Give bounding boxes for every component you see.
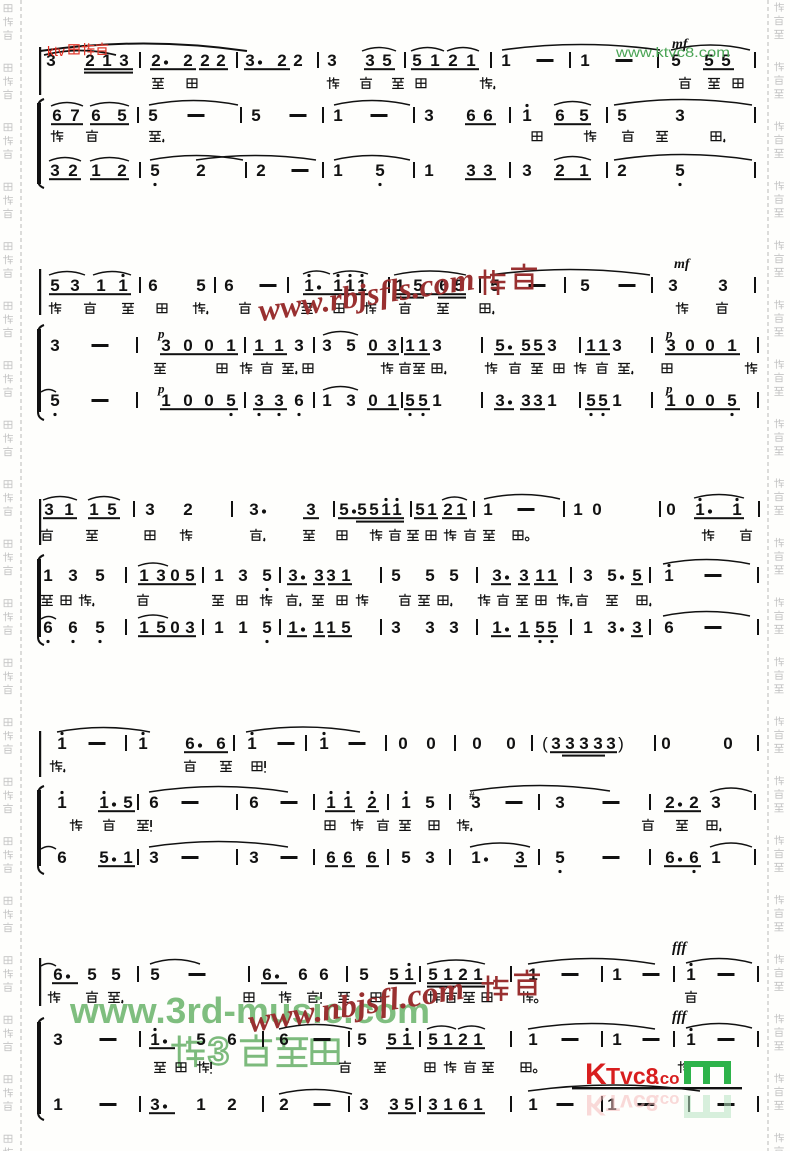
- svg-text:2: 2: [183, 500, 192, 519]
- svg-text:3: 3: [156, 566, 165, 585]
- svg-text:0: 0: [472, 734, 481, 753]
- svg-text:1: 1: [519, 618, 528, 637]
- svg-text:www.ktvc8.com: www.ktvc8.com: [615, 44, 730, 60]
- svg-text:1: 1: [686, 1030, 695, 1049]
- svg-text:K: K: [585, 1058, 607, 1091]
- svg-text:1: 1: [214, 618, 223, 637]
- svg-text:3: 3: [389, 1095, 398, 1114]
- svg-text:1: 1: [274, 336, 283, 355]
- svg-text:1: 1: [471, 848, 480, 867]
- svg-text:1: 1: [443, 1095, 452, 1114]
- svg-text:1: 1: [43, 566, 52, 585]
- svg-text:3: 3: [428, 1095, 437, 1114]
- svg-text:1: 1: [326, 793, 335, 812]
- svg-text:2: 2: [196, 161, 205, 180]
- svg-text:2: 2: [183, 51, 192, 70]
- svg-text:0: 0: [685, 336, 694, 355]
- svg-text:2: 2: [200, 51, 209, 70]
- svg-text:6: 6: [57, 848, 66, 867]
- svg-text:1: 1: [612, 965, 621, 984]
- svg-text:3: 3: [533, 391, 542, 410]
- svg-text:fff: fff: [672, 1009, 688, 1025]
- svg-text:1: 1: [123, 848, 132, 867]
- svg-text:5: 5: [555, 848, 564, 867]
- svg-text:5: 5: [607, 566, 616, 585]
- svg-text:3: 3: [359, 1095, 368, 1114]
- svg-text:6: 6: [52, 106, 61, 125]
- svg-text:.co: .co: [655, 1091, 680, 1110]
- svg-text:3: 3: [607, 618, 616, 637]
- svg-text:5: 5: [156, 618, 165, 637]
- svg-text:5: 5: [675, 161, 684, 180]
- svg-text:1: 1: [612, 1030, 621, 1049]
- svg-text:5: 5: [632, 566, 641, 585]
- svg-text:2: 2: [216, 51, 225, 70]
- svg-text:1: 1: [473, 1095, 482, 1114]
- svg-text:1: 1: [89, 500, 98, 519]
- svg-text:1: 1: [501, 51, 510, 70]
- svg-text:1: 1: [91, 161, 100, 180]
- svg-text:3: 3: [425, 848, 434, 867]
- svg-text:3: 3: [449, 618, 458, 637]
- svg-text:1: 1: [139, 566, 148, 585]
- svg-text:5: 5: [117, 106, 126, 125]
- svg-text:3: 3: [424, 106, 433, 125]
- svg-text:3: 3: [44, 500, 53, 519]
- svg-text:2: 2: [256, 161, 265, 180]
- svg-text:3: 3: [294, 336, 303, 355]
- svg-text:(: (: [542, 734, 548, 753]
- svg-text:6: 6: [249, 793, 258, 812]
- svg-text:5: 5: [418, 391, 427, 410]
- svg-text:2: 2: [665, 793, 674, 812]
- svg-text:5: 5: [535, 618, 544, 637]
- svg-text:3: 3: [425, 618, 434, 637]
- svg-text:1: 1: [322, 391, 331, 410]
- svg-text:3: 3: [68, 566, 77, 585]
- svg-text:6: 6: [149, 793, 158, 812]
- svg-text:5: 5: [359, 965, 368, 984]
- svg-text:1: 1: [288, 618, 297, 637]
- svg-text:0: 0: [204, 391, 213, 410]
- svg-text:5: 5: [404, 1095, 413, 1114]
- svg-text:5: 5: [449, 566, 458, 585]
- svg-text:6: 6: [483, 106, 492, 125]
- svg-text:3: 3: [466, 161, 475, 180]
- svg-text:5: 5: [391, 566, 400, 585]
- svg-text:6: 6: [458, 1095, 467, 1114]
- svg-text:#: #: [469, 791, 475, 802]
- svg-text:1: 1: [456, 500, 465, 519]
- svg-text:5: 5: [150, 161, 159, 180]
- svg-text:1: 1: [196, 1095, 205, 1114]
- svg-text:5: 5: [111, 965, 120, 984]
- svg-text:2: 2: [151, 51, 160, 70]
- svg-text:6: 6: [91, 106, 100, 125]
- svg-text:3: 3: [675, 106, 684, 125]
- svg-text:3: 3: [150, 1095, 159, 1114]
- svg-text:3: 3: [606, 734, 615, 753]
- svg-text:5: 5: [50, 391, 59, 410]
- svg-text:1: 1: [333, 161, 342, 180]
- svg-text:3: 3: [391, 618, 400, 637]
- svg-text:1: 1: [99, 793, 108, 812]
- svg-text:5: 5: [346, 336, 355, 355]
- svg-text:1: 1: [402, 1030, 411, 1049]
- svg-text:3: 3: [274, 391, 283, 410]
- svg-text:1: 1: [483, 500, 492, 519]
- svg-text:5: 5: [251, 106, 260, 125]
- svg-text:1: 1: [392, 500, 401, 519]
- svg-text:5: 5: [405, 391, 414, 410]
- svg-text:3: 3: [249, 500, 258, 519]
- svg-text:5: 5: [412, 51, 421, 70]
- svg-text:5: 5: [262, 566, 271, 585]
- svg-text:3: 3: [495, 391, 504, 410]
- svg-text:Tvc8: Tvc8: [606, 1090, 659, 1116]
- svg-text:0: 0: [723, 734, 732, 753]
- svg-text:1: 1: [64, 500, 73, 519]
- svg-text:6: 6: [555, 106, 564, 125]
- svg-text:5: 5: [580, 276, 589, 295]
- svg-text:0: 0: [398, 734, 407, 753]
- svg-text:5: 5: [369, 500, 378, 519]
- svg-text:1: 1: [341, 566, 350, 585]
- svg-text:0: 0: [368, 391, 377, 410]
- svg-text:6: 6: [367, 848, 376, 867]
- svg-text:6: 6: [68, 618, 77, 637]
- svg-text:3: 3: [521, 391, 530, 410]
- svg-text:5: 5: [150, 965, 159, 984]
- svg-text:6: 6: [689, 848, 698, 867]
- svg-text:5: 5: [428, 1030, 437, 1049]
- svg-text:6: 6: [43, 618, 52, 637]
- svg-text:1: 1: [387, 391, 396, 410]
- svg-text:1: 1: [727, 336, 736, 355]
- svg-text:6: 6: [224, 276, 233, 295]
- svg-text:5: 5: [617, 106, 626, 125]
- svg-text:2: 2: [689, 793, 698, 812]
- svg-text:1: 1: [139, 618, 148, 637]
- svg-text:2: 2: [117, 161, 126, 180]
- svg-text:1: 1: [664, 566, 673, 585]
- svg-text:1: 1: [586, 336, 595, 355]
- svg-text:1: 1: [118, 276, 127, 295]
- svg-text:3: 3: [555, 793, 564, 812]
- svg-text:2: 2: [293, 51, 302, 70]
- svg-text:5: 5: [521, 336, 530, 355]
- svg-text:1: 1: [583, 618, 592, 637]
- svg-text:2: 2: [277, 51, 286, 70]
- svg-text:1: 1: [473, 965, 482, 984]
- svg-text:6: 6: [294, 391, 303, 410]
- svg-text:5: 5: [586, 391, 595, 410]
- svg-text:3: 3: [612, 336, 621, 355]
- svg-text:ktv: ktv: [47, 43, 65, 59]
- svg-text:1: 1: [96, 276, 105, 295]
- svg-text:1: 1: [473, 1030, 482, 1049]
- svg-text:5: 5: [262, 618, 271, 637]
- svg-text:5: 5: [196, 276, 205, 295]
- svg-text:3: 3: [579, 734, 588, 753]
- svg-text:1: 1: [247, 734, 256, 753]
- svg-text:6: 6: [319, 965, 328, 984]
- svg-text:3: 3: [238, 566, 247, 585]
- svg-text:1: 1: [573, 500, 582, 519]
- svg-text:5: 5: [579, 106, 588, 125]
- svg-text:1: 1: [686, 965, 695, 984]
- svg-text:3: 3: [322, 336, 331, 355]
- svg-text:3: 3: [245, 51, 254, 70]
- svg-text:3: 3: [149, 848, 158, 867]
- svg-text:1: 1: [214, 566, 223, 585]
- svg-text:1: 1: [343, 793, 352, 812]
- svg-text:): ): [618, 734, 624, 753]
- svg-text:5: 5: [185, 566, 194, 585]
- svg-text:3: 3: [668, 276, 677, 295]
- svg-text:fff: fff: [672, 940, 688, 956]
- svg-text:1: 1: [612, 391, 621, 410]
- svg-text:1: 1: [711, 848, 720, 867]
- svg-text:0: 0: [705, 336, 714, 355]
- svg-text:5: 5: [341, 618, 350, 637]
- svg-text:1: 1: [381, 500, 390, 519]
- svg-text:3: 3: [185, 618, 194, 637]
- svg-text:3: 3: [119, 51, 128, 70]
- svg-text:1: 1: [443, 1030, 452, 1049]
- svg-text:3: 3: [327, 51, 336, 70]
- svg-text:3: 3: [515, 848, 524, 867]
- svg-text:2: 2: [85, 51, 94, 70]
- svg-text:1: 1: [401, 793, 410, 812]
- svg-text:3: 3: [432, 336, 441, 355]
- svg-text:5: 5: [226, 391, 235, 410]
- svg-text:6: 6: [53, 965, 62, 984]
- svg-text:0: 0: [183, 391, 192, 410]
- svg-text:5: 5: [382, 51, 391, 70]
- svg-text:1: 1: [466, 51, 475, 70]
- svg-text:5: 5: [727, 391, 736, 410]
- svg-text:1: 1: [580, 51, 589, 70]
- svg-text:5: 5: [87, 965, 96, 984]
- svg-text:5: 5: [357, 500, 366, 519]
- svg-text:6: 6: [343, 848, 352, 867]
- svg-text:0: 0: [170, 618, 179, 637]
- svg-text:0: 0: [661, 734, 670, 753]
- svg-text:0: 0: [368, 336, 377, 355]
- svg-text:1: 1: [432, 391, 441, 410]
- svg-text:1: 1: [528, 1095, 537, 1114]
- svg-text:3: 3: [718, 276, 727, 295]
- svg-text:2: 2: [367, 793, 376, 812]
- svg-text:1: 1: [427, 500, 436, 519]
- svg-text:2: 2: [617, 161, 626, 180]
- svg-text:1: 1: [161, 391, 170, 410]
- svg-text:5: 5: [425, 566, 434, 585]
- svg-text:1: 1: [424, 161, 433, 180]
- svg-text:0: 0: [506, 734, 515, 753]
- svg-text:6: 6: [664, 618, 673, 637]
- svg-text:1: 1: [522, 106, 531, 125]
- svg-text:1: 1: [138, 734, 147, 753]
- svg-text:1: 1: [528, 1030, 537, 1049]
- svg-text:2: 2: [448, 51, 457, 70]
- svg-text:5: 5: [123, 793, 132, 812]
- svg-text:5: 5: [547, 618, 556, 637]
- svg-text:3: 3: [161, 336, 170, 355]
- svg-text:5: 5: [95, 566, 104, 585]
- svg-text:5: 5: [415, 500, 424, 519]
- svg-text:3: 3: [551, 734, 560, 753]
- svg-text:3: 3: [522, 161, 531, 180]
- svg-text:2: 2: [227, 1095, 236, 1114]
- svg-text:2: 2: [68, 161, 77, 180]
- svg-text:1: 1: [547, 391, 556, 410]
- svg-text:5: 5: [357, 1030, 366, 1049]
- svg-text:6: 6: [262, 965, 271, 984]
- svg-text:3: 3: [483, 161, 492, 180]
- svg-text:3: 3: [70, 276, 79, 295]
- svg-text:3: 3: [547, 336, 556, 355]
- svg-text:3: 3: [711, 793, 720, 812]
- svg-text:3: 3: [53, 1030, 62, 1049]
- svg-text:K: K: [585, 1088, 607, 1121]
- svg-text:5: 5: [425, 793, 434, 812]
- svg-text:1: 1: [492, 618, 501, 637]
- svg-text:6: 6: [279, 1030, 288, 1049]
- svg-text:1: 1: [418, 336, 427, 355]
- svg-text:6: 6: [326, 848, 335, 867]
- svg-text:6: 6: [466, 106, 475, 125]
- svg-text:5: 5: [99, 848, 108, 867]
- svg-text:5: 5: [339, 500, 348, 519]
- svg-text:1: 1: [547, 566, 556, 585]
- svg-text:6: 6: [148, 276, 157, 295]
- svg-text:3: 3: [288, 566, 297, 585]
- svg-text:3: 3: [254, 391, 263, 410]
- svg-text:1: 1: [326, 618, 335, 637]
- svg-text:1: 1: [238, 618, 247, 637]
- svg-text:1: 1: [57, 793, 66, 812]
- svg-text:1: 1: [150, 1030, 159, 1049]
- svg-text:3: 3: [249, 848, 258, 867]
- svg-text:2: 2: [458, 1030, 467, 1049]
- svg-text:3: 3: [314, 566, 323, 585]
- svg-text:1: 1: [732, 500, 741, 519]
- svg-text:3: 3: [387, 336, 396, 355]
- svg-text:1: 1: [666, 391, 675, 410]
- svg-text:6: 6: [665, 848, 674, 867]
- svg-text:0: 0: [592, 500, 601, 519]
- svg-text:1: 1: [579, 161, 588, 180]
- svg-text:1: 1: [53, 1095, 62, 1114]
- svg-text:1: 1: [57, 734, 66, 753]
- svg-text:5: 5: [375, 161, 384, 180]
- svg-text:0: 0: [426, 734, 435, 753]
- svg-text:1: 1: [430, 51, 439, 70]
- svg-text:3: 3: [593, 734, 602, 753]
- svg-text:0: 0: [204, 336, 213, 355]
- svg-text:1: 1: [598, 336, 607, 355]
- svg-text:3: 3: [365, 51, 374, 70]
- svg-text:5: 5: [495, 336, 504, 355]
- svg-text:1: 1: [333, 106, 342, 125]
- svg-text:6: 6: [216, 734, 225, 753]
- svg-text:5: 5: [148, 106, 157, 125]
- svg-text:5: 5: [50, 276, 59, 295]
- svg-text:3: 3: [632, 618, 641, 637]
- svg-text:2: 2: [555, 161, 564, 180]
- svg-text:3: 3: [666, 336, 675, 355]
- svg-text:2: 2: [443, 500, 452, 519]
- svg-text:6: 6: [298, 965, 307, 984]
- svg-text:6: 6: [185, 734, 194, 753]
- svg-text:3: 3: [50, 161, 59, 180]
- svg-text:3: 3: [145, 500, 154, 519]
- svg-text:6: 6: [227, 1030, 236, 1049]
- svg-text:3: 3: [492, 566, 501, 585]
- svg-text:3: 3: [346, 391, 355, 410]
- svg-text:1: 1: [535, 566, 544, 585]
- svg-text:5: 5: [196, 1030, 205, 1049]
- svg-text:5: 5: [95, 618, 104, 637]
- svg-text:1: 1: [405, 336, 414, 355]
- svg-text:1: 1: [226, 336, 235, 355]
- svg-text:0: 0: [705, 391, 714, 410]
- svg-text:0: 0: [183, 336, 192, 355]
- svg-text:5: 5: [387, 1030, 396, 1049]
- svg-text:0: 0: [666, 500, 675, 519]
- svg-text:3: 3: [326, 566, 335, 585]
- svg-text:Tvc8: Tvc8: [606, 1063, 659, 1089]
- svg-text:3: 3: [306, 500, 315, 519]
- svg-text:1: 1: [695, 500, 704, 519]
- svg-text:3: 3: [583, 566, 592, 585]
- svg-text:3: 3: [50, 336, 59, 355]
- svg-text:5: 5: [401, 848, 410, 867]
- svg-text:2: 2: [279, 1095, 288, 1114]
- svg-text:5: 5: [107, 500, 116, 519]
- svg-text:1: 1: [319, 734, 328, 753]
- svg-text:1: 1: [254, 336, 263, 355]
- svg-text:3: 3: [565, 734, 574, 753]
- svg-text:mf: mf: [674, 257, 691, 272]
- svg-text:0: 0: [170, 566, 179, 585]
- svg-text:5: 5: [598, 391, 607, 410]
- svg-text:0: 0: [685, 391, 694, 410]
- svg-text:1: 1: [314, 618, 323, 637]
- svg-text:7: 7: [70, 106, 79, 125]
- svg-text:5: 5: [533, 336, 542, 355]
- svg-text:3: 3: [519, 566, 528, 585]
- svg-text:.co: .co: [655, 1069, 680, 1088]
